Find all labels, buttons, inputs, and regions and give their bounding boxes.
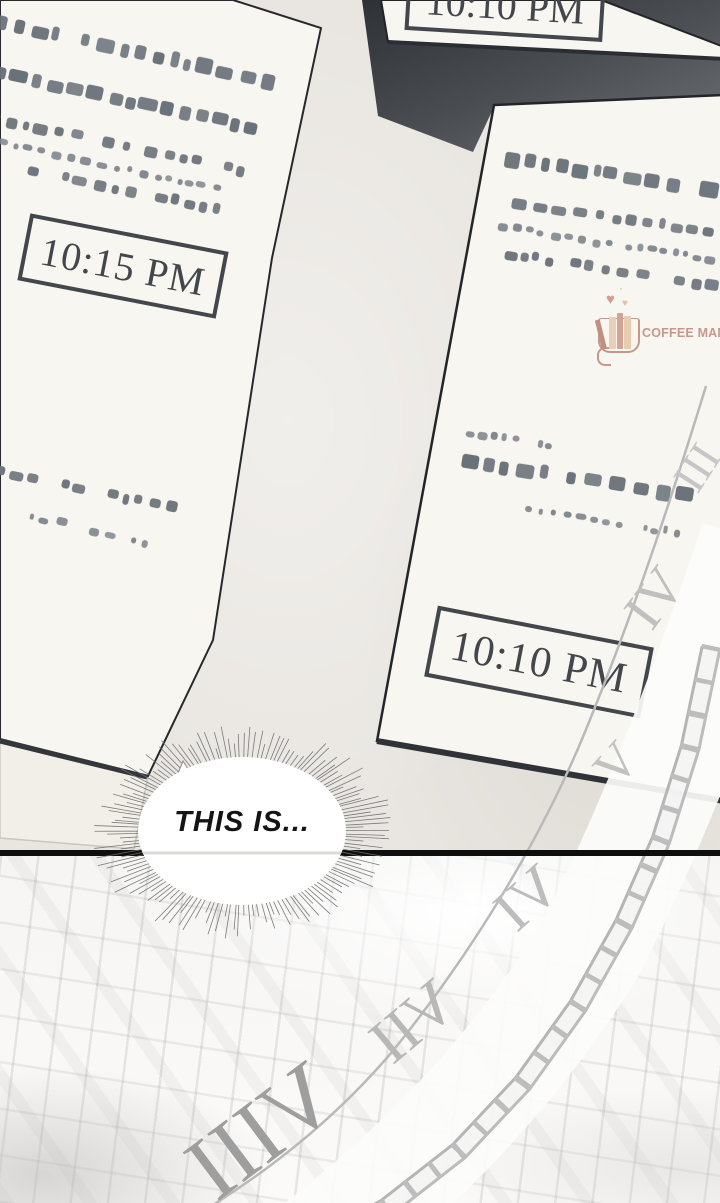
speech-bubble-text: THIS IS... [122, 806, 362, 839]
minute-track-tick [688, 713, 707, 717]
clock-numeral-iii: III [663, 434, 720, 500]
clock-face-overlay: IIIIVVVIVIIVIII [0, 0, 720, 1203]
manga-page: 10:10 PM 10:15 PM 10:10 PM ♥ ♥ • COFFEE … [0, 0, 720, 1203]
